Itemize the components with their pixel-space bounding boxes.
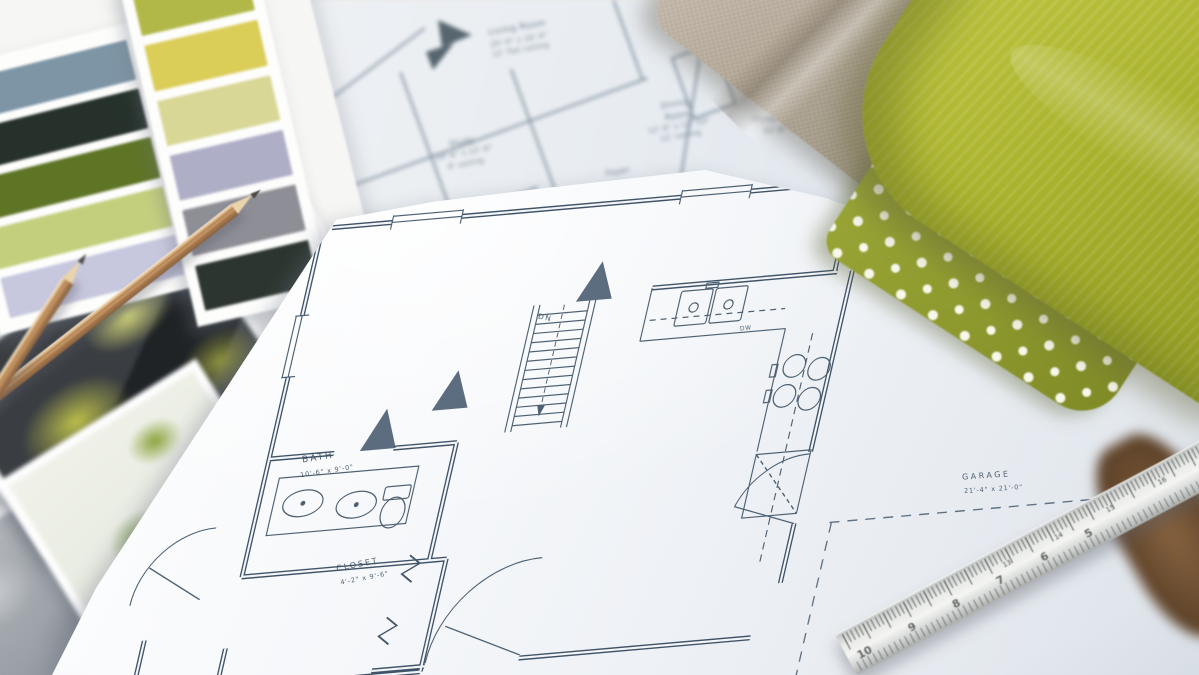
dishwasher-label: DW (740, 325, 752, 333)
kitchen (584, 271, 852, 583)
kitchen-sink (674, 289, 714, 327)
closet-door (130, 528, 216, 606)
door-leaf (729, 501, 799, 529)
walls (119, 180, 873, 675)
stove-burner (781, 354, 808, 378)
walls-core (119, 180, 873, 675)
wall-break (376, 554, 421, 645)
door-leaf (432, 369, 477, 411)
toilet-tank (383, 485, 412, 501)
designer-desk-photo: Living Room 20'-0" x 16'-0" 12' flat cei… (0, 0, 1199, 675)
door-leaf (576, 260, 621, 302)
stove-burner (771, 384, 798, 408)
refrigerator (742, 450, 811, 518)
bathroom (265, 405, 433, 539)
fabric-crease (990, 13, 1199, 295)
kitchen-sink (709, 286, 749, 324)
door-leaf (360, 407, 405, 451)
